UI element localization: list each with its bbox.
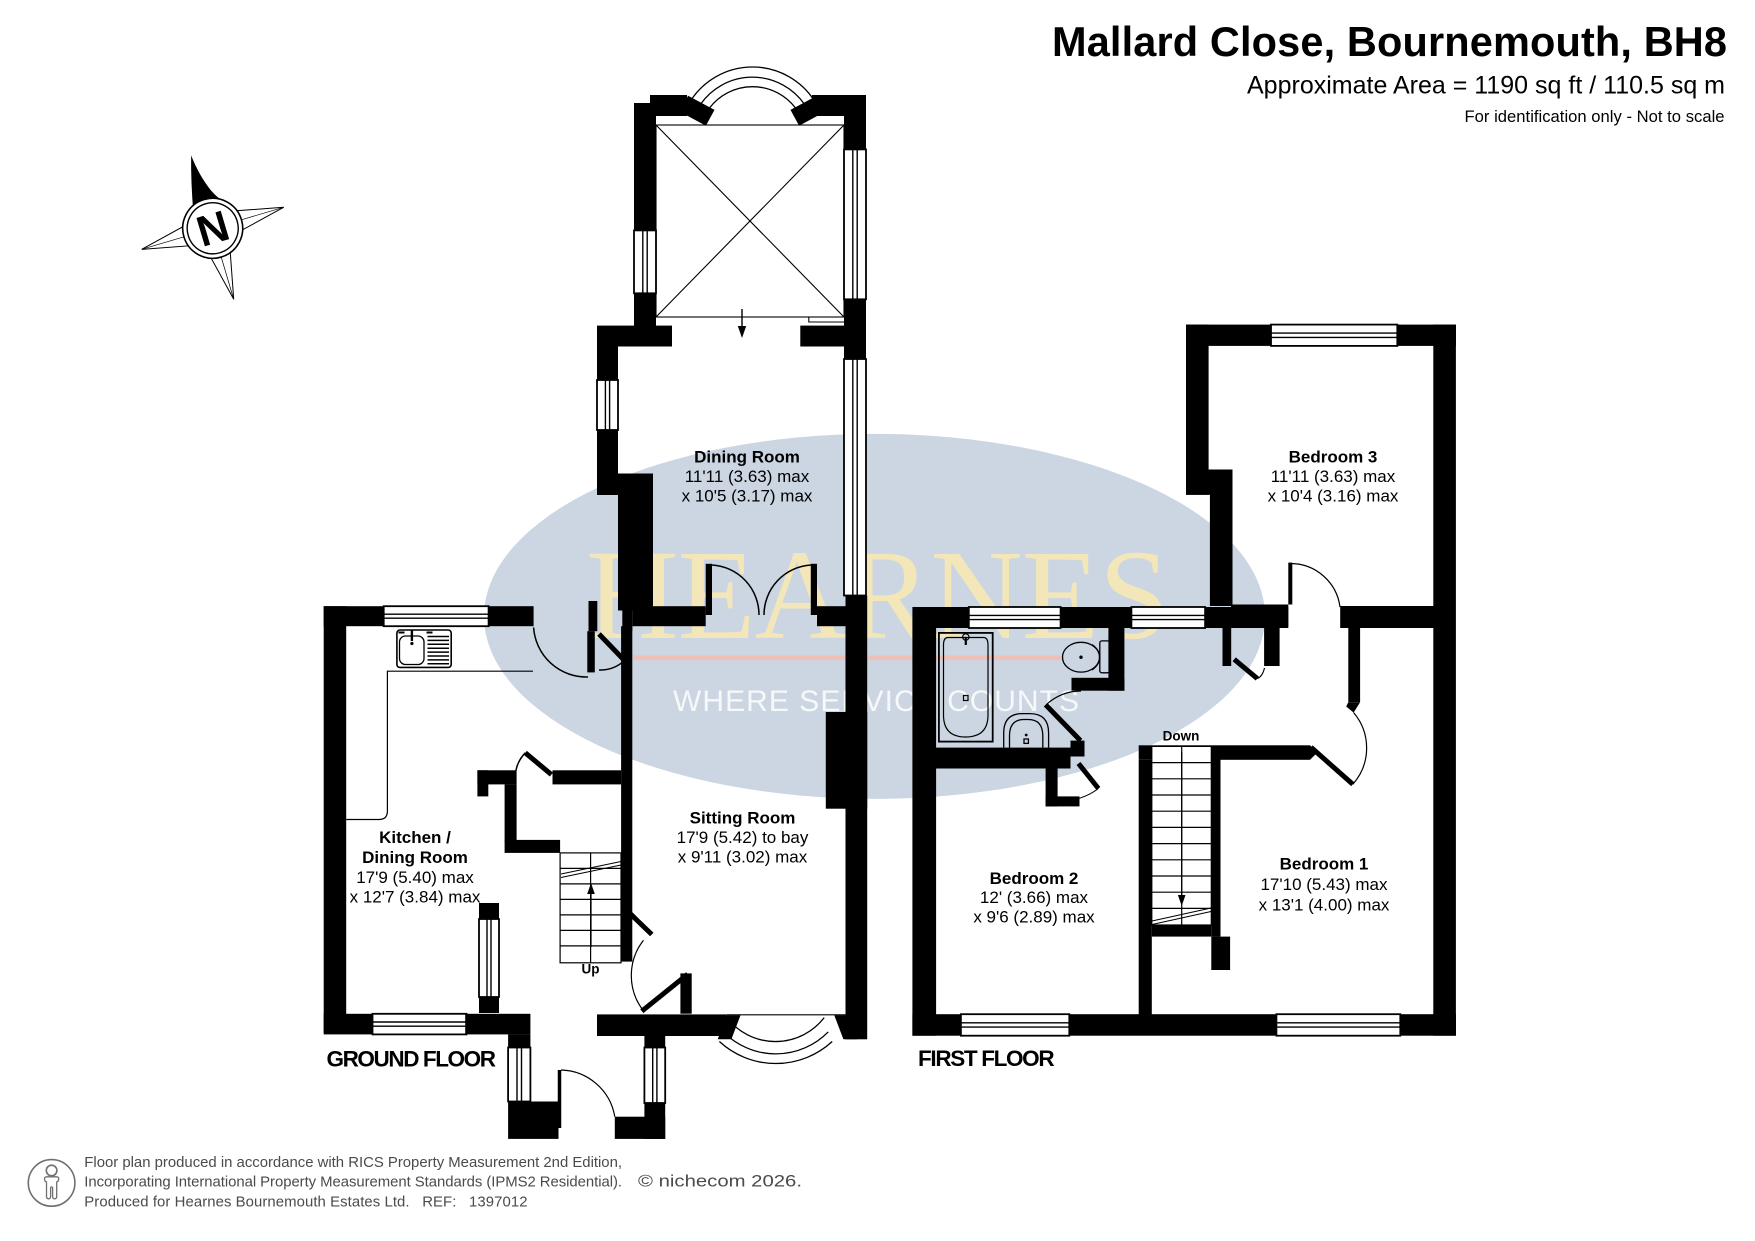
- svg-text:Mallard Close, Bournemouth, BH: Mallard Close, Bournemouth, BH8: [1052, 18, 1727, 65]
- svg-text:11'11 (3.63) max: 11'11 (3.63) max: [685, 467, 810, 486]
- svg-text:Down: Down: [1163, 729, 1200, 744]
- svg-text:12' (3.66) max: 12' (3.66) max: [980, 888, 1089, 907]
- svg-text:Up: Up: [582, 962, 600, 977]
- svg-text:© nichecom 2026.: © nichecom 2026.: [638, 1173, 802, 1191]
- svg-text:Dining Room: Dining Room: [362, 848, 468, 867]
- svg-text:Sitting Room: Sitting Room: [690, 809, 796, 828]
- svg-text:x 10'4 (3.16) max: x 10'4 (3.16) max: [1268, 486, 1399, 505]
- svg-text:x 9'6 (2.89) max: x 9'6 (2.89) max: [973, 908, 1095, 927]
- svg-text:Approximate Area = 1190 sq ft: Approximate Area = 1190 sq ft / 110.5 sq…: [1247, 72, 1725, 100]
- svg-text:WHERE SERVICE COUNTS: WHERE SERVICE COUNTS: [673, 685, 1079, 718]
- svg-text:x 9'11 (3.02) max: x 9'11 (3.02) max: [678, 848, 808, 867]
- svg-text:FIRST FLOOR: FIRST FLOOR: [918, 1046, 1055, 1071]
- svg-text:HEARNES: HEARNES: [586, 524, 1170, 666]
- svg-text:For identification only - Not: For identification only - Not to scale: [1465, 107, 1725, 126]
- svg-text:17'9 (5.40) max: 17'9 (5.40) max: [356, 868, 474, 887]
- svg-text:17'10 (5.43) max: 17'10 (5.43) max: [1260, 875, 1388, 894]
- svg-text:Incorporating International Pr: Incorporating International Property Mea…: [84, 1175, 622, 1191]
- svg-text:Dining Room: Dining Room: [694, 448, 800, 467]
- svg-text:11'11 (3.63) max: 11'11 (3.63) max: [1271, 467, 1396, 486]
- svg-text:Bedroom 2: Bedroom 2: [990, 869, 1079, 888]
- svg-text:Bedroom 1: Bedroom 1: [1280, 854, 1369, 873]
- svg-text:x 12'7 (3.84) max: x 12'7 (3.84) max: [350, 888, 481, 907]
- svg-text:x 13'1 (4.00) max: x 13'1 (4.00) max: [1259, 895, 1390, 914]
- svg-text:Produced for Hearnes Bournemou: Produced for Hearnes Bournemouth Estates…: [84, 1194, 527, 1210]
- svg-text:Bedroom 3: Bedroom 3: [1289, 448, 1378, 467]
- svg-text:GROUND FLOOR: GROUND FLOOR: [327, 1047, 497, 1072]
- svg-text:x 10'5 (3.17) max: x 10'5 (3.17) max: [682, 486, 813, 505]
- svg-text:17'9 (5.42) to bay: 17'9 (5.42) to bay: [677, 828, 809, 847]
- svg-text:Kitchen /: Kitchen /: [379, 828, 451, 847]
- svg-text:Floor plan produced in accorda: Floor plan produced in accordance with R…: [84, 1155, 622, 1171]
